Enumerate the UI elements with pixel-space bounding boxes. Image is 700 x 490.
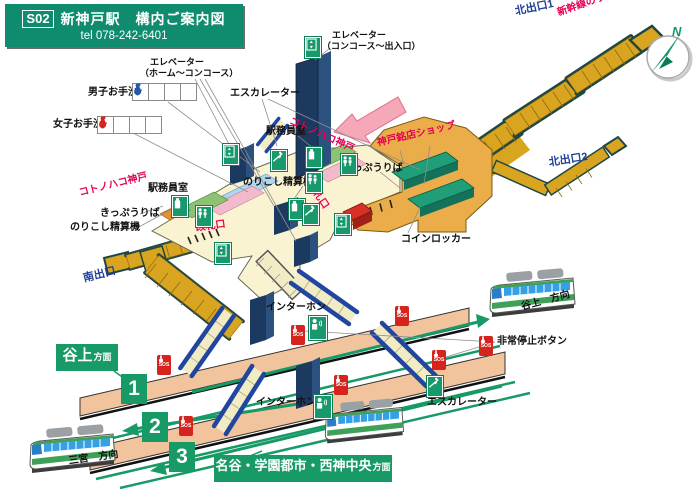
press-hand-icon — [157, 355, 165, 363]
label-tickets-left: きっぷうりば — [100, 208, 160, 220]
station-code-badge: S02 — [22, 10, 53, 28]
intercom-icon — [314, 395, 332, 419]
ticket-machine-icon — [306, 147, 322, 168]
press-hand-icon — [432, 350, 440, 358]
label-fare-adjust-left: のりこし精算機 — [70, 222, 140, 234]
station-guide-map: S02 新神戸駅 構内ご案内図 tel 078-242-6401 エレベーター … — [0, 0, 700, 490]
label-elevator-home: エレベーター — [150, 57, 204, 67]
mens-toilet-icons — [133, 83, 197, 101]
sos-button-5: SOS — [334, 375, 348, 395]
station-map-canvas — [0, 0, 700, 490]
wheelchair-icon — [148, 83, 165, 101]
bag-icon — [180, 83, 197, 101]
label-fare-adjust-right: のりこし精算機 — [243, 177, 313, 189]
platform-number-3: 3 — [169, 442, 195, 472]
press-hand-icon — [334, 375, 342, 383]
sos-button-1: SOS — [157, 355, 171, 375]
elevator-icon — [305, 37, 321, 58]
page-title: 新神戸駅 構内ご案内図 — [61, 9, 226, 29]
station-phone: tel 078-242-6401 — [81, 30, 168, 42]
sos-button-2: SOS — [291, 325, 305, 345]
label-escalator-top: エスカレーター — [230, 88, 300, 100]
sos-button-emergency-stop: SOS — [479, 336, 493, 356]
bag-icon — [145, 116, 162, 134]
label-intercom-upper: インターホン — [266, 302, 326, 314]
press-hand-icon — [179, 416, 187, 424]
compass-north-letter: N — [672, 24, 681, 39]
label-elevator-gate-sub: （コンコース〜出入口） — [322, 41, 421, 51]
platform-number-2: 2 — [142, 412, 168, 442]
label-elevator-gate: エレベーター — [332, 30, 386, 40]
sos-button-4: SOS — [179, 416, 193, 436]
label-escalator-bottom: エスカレーター — [427, 397, 497, 409]
label-coin-lockers: コインロッカー — [401, 234, 471, 246]
platform-number-1: 1 — [121, 374, 147, 404]
elevator-icon — [215, 243, 231, 264]
map-header: S02 新神戸駅 構内ご案内図 tel 078-242-6401 — [5, 4, 243, 47]
label-office-left: 駅務員室 — [148, 183, 188, 195]
staff-icon — [341, 154, 357, 175]
escalator-icon — [271, 150, 287, 171]
staff-icon — [306, 172, 322, 193]
escalator-icon — [303, 204, 319, 225]
sos-button-3: SOS — [395, 306, 409, 326]
wheelchair-icon — [113, 116, 130, 134]
child-icon — [164, 83, 181, 101]
sos-button-6: SOS — [432, 350, 446, 370]
label-mens-toilet: 男子お手洗 — [88, 87, 138, 99]
seishin-direction-box: 名谷・学園都市・西神中央方面 — [214, 455, 392, 482]
label-intercom-lower: インターホン — [256, 397, 316, 409]
label-emergency-stop: 非常停止ボタン — [497, 336, 567, 348]
womens-toilet-icons — [98, 116, 162, 134]
escalator-icon — [427, 376, 443, 397]
press-hand-icon — [291, 325, 299, 333]
label-womens-toilet: 女子お手洗 — [53, 119, 103, 131]
press-hand-icon — [479, 336, 487, 344]
ticket-machine-icon — [172, 196, 188, 217]
elevator-icon — [223, 144, 239, 165]
tanigami-direction-box: 谷上方面 — [56, 344, 118, 371]
child-icon — [129, 116, 146, 134]
elevator-icon — [335, 214, 351, 235]
label-elevator-home-sub: （ホーム〜コンコース） — [140, 68, 238, 78]
press-hand-icon — [395, 306, 403, 314]
staff-icon — [196, 206, 212, 227]
intercom-icon — [309, 316, 327, 340]
